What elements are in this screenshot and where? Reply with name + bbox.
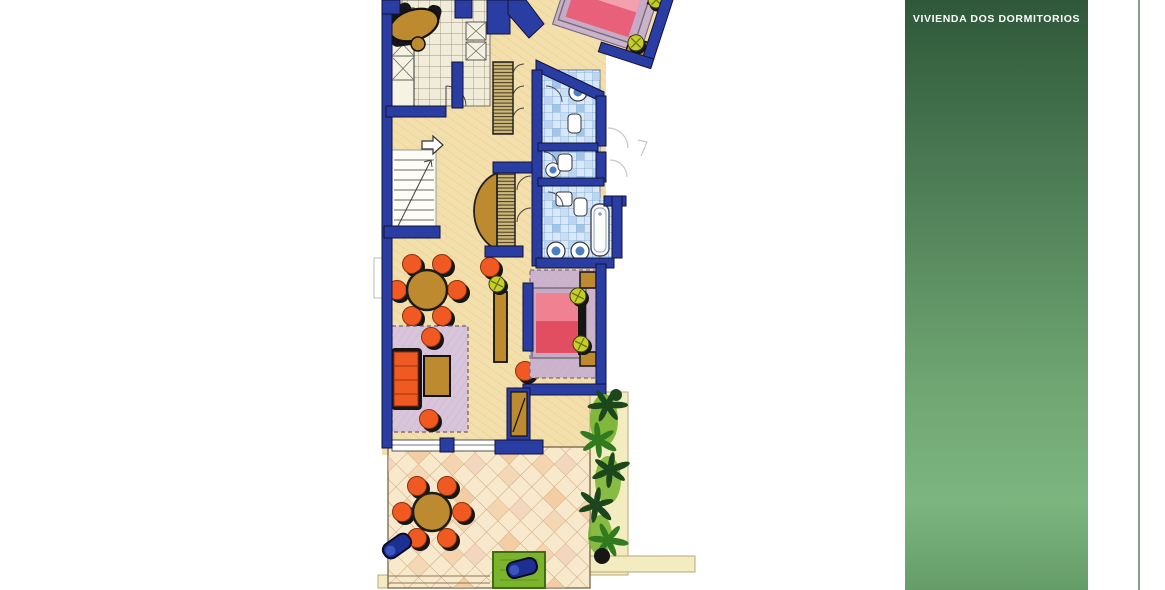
shower-tray xyxy=(556,192,572,206)
panel-title: VIVIENDA DOS DORMITORIOS xyxy=(905,0,1088,25)
info-panel: VIVIENDA DOS DORMITORIOS xyxy=(905,0,1088,590)
floor-plan xyxy=(370,0,710,590)
page-divider-line xyxy=(1138,0,1140,590)
toilet-2 xyxy=(558,154,572,171)
terrace-table xyxy=(413,493,451,531)
bedroom-2 xyxy=(530,270,596,378)
bathtub xyxy=(591,204,609,256)
kitchen xyxy=(386,0,490,106)
pencil-marks xyxy=(608,128,647,177)
brochure-page: VIVIENDA DOS DORMITORIOS xyxy=(0,0,1165,590)
sofa xyxy=(391,348,422,410)
living-area xyxy=(391,326,468,432)
dining-table xyxy=(407,270,447,310)
coffee-table xyxy=(424,356,450,396)
plant-pot xyxy=(594,548,610,564)
toilet xyxy=(568,114,581,133)
toilet-3 xyxy=(574,198,587,216)
green-mat xyxy=(493,552,545,588)
sideboard xyxy=(494,292,507,362)
nightstand xyxy=(580,272,596,288)
bedroom-door xyxy=(511,392,527,436)
